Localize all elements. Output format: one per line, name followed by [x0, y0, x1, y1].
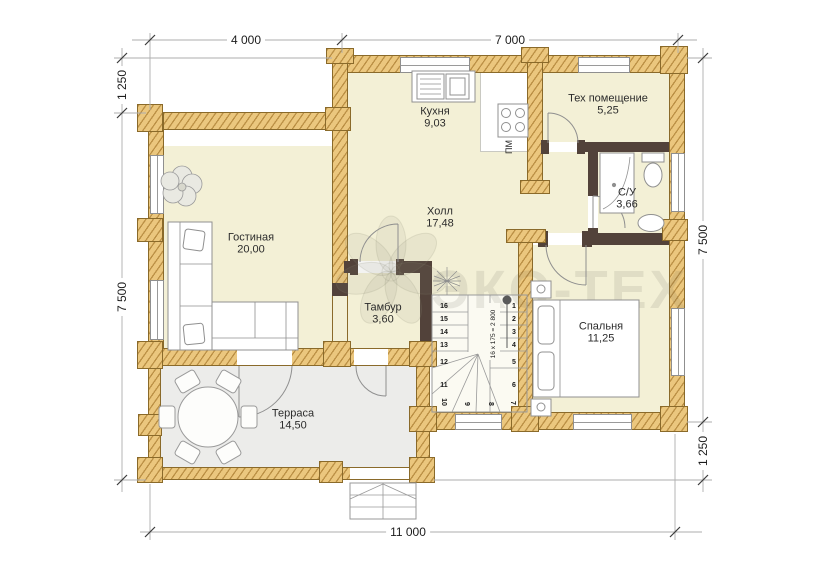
log-crossing	[326, 48, 354, 64]
wall-stairs-bedroom	[518, 233, 533, 412]
room-area: 17,48	[426, 218, 454, 230]
room-label-tech: Тех помещение 5,25	[568, 93, 648, 118]
wall-kitchen-tech-divider	[527, 55, 543, 188]
floor-hall-lower	[432, 261, 518, 295]
room-area: 9,03	[420, 118, 449, 130]
opening-living-terrace	[237, 349, 292, 365]
room-label-kitchen: Кухня 9,03	[420, 106, 449, 131]
room-area: 14,50	[272, 420, 314, 432]
dim-left-upper: 1 250	[115, 66, 129, 104]
log-crossing	[137, 218, 163, 242]
jamb-bedroom-right	[582, 231, 592, 247]
log-crossing	[319, 461, 343, 483]
room-area: 3,66	[616, 199, 637, 211]
log-crossing	[325, 107, 351, 131]
log-crossing	[511, 406, 539, 432]
log-crossing	[137, 104, 163, 132]
dim-right-upper: 7 500	[696, 221, 710, 259]
dim-top-left: 4 000	[227, 33, 265, 47]
opening-bath-door	[588, 196, 598, 228]
log-crossing	[409, 341, 437, 367]
room-name: Тех помещение	[568, 93, 648, 105]
room-area: 3,60	[364, 314, 401, 326]
room-name: С/У	[616, 187, 637, 199]
opening-tambour-hall	[358, 261, 396, 273]
window-living-1	[150, 155, 164, 214]
floor-corridor-lower	[518, 188, 588, 233]
window-living-2	[150, 280, 164, 340]
log-crossing	[138, 414, 162, 436]
dim-bottom: 11 000	[386, 525, 430, 539]
wall-top	[332, 55, 685, 73]
log-crossing	[137, 457, 163, 483]
room-label-tambour: Тамбур 3,60	[364, 302, 401, 327]
partition-tambour-right	[420, 261, 432, 352]
room-label-terrace: Терраса 14,50	[272, 408, 314, 433]
floor-stairwell	[432, 295, 527, 412]
jamb-tambour-right	[396, 259, 404, 275]
room-name: Гостиная	[228, 232, 274, 244]
log-crossing	[660, 406, 688, 432]
partition-bedroom-top	[588, 233, 669, 245]
dim-right-lower: 1 250	[696, 432, 710, 470]
log-crossing	[506, 229, 546, 243]
window-tech	[578, 57, 630, 73]
dishwasher-label: ПМ	[504, 140, 514, 154]
room-name: Спальня	[579, 321, 623, 333]
log-crossing	[323, 341, 351, 367]
window-kitchen	[400, 57, 470, 73]
wall-living-top	[148, 112, 348, 130]
room-area: 20,00	[228, 244, 274, 256]
room-label-bedroom: Спальня 11,25	[579, 321, 623, 346]
dim-left-lower: 7 500	[115, 278, 129, 316]
dim-top-right: 7 000	[491, 33, 529, 47]
porch-steps	[350, 483, 416, 519]
log-crossing	[137, 341, 163, 369]
window-bedroom-east	[671, 308, 685, 376]
jamb-tech-right	[577, 140, 585, 154]
opening-front-door	[354, 349, 388, 365]
window-bedroom-south	[573, 414, 632, 430]
room-area: 5,25	[568, 105, 648, 117]
room-name: Кухня	[420, 106, 449, 118]
log-crossing	[409, 457, 435, 483]
jamb-tambour-left	[350, 259, 358, 275]
log-crossing	[660, 46, 688, 74]
room-name: Терраса	[272, 408, 314, 420]
jamb-tech-left	[541, 140, 549, 154]
room-name: Холл	[426, 206, 454, 218]
log-crossing	[521, 47, 549, 63]
room-name: Тамбур	[364, 302, 401, 314]
room-label-bath: С/У 3,66	[616, 187, 637, 212]
opening-terrace-steps	[350, 468, 416, 479]
log-crossing	[409, 406, 437, 432]
opening-tech-door	[549, 142, 577, 152]
floor-plan: ЭКО-ТЕХ	[0, 0, 820, 567]
log-crossing	[662, 219, 688, 241]
jamb-living-opening	[332, 283, 348, 296]
log-crossing	[520, 180, 550, 194]
room-area: 11,25	[579, 333, 623, 345]
room-label-living: Гостиная 20,00	[228, 232, 274, 257]
window-bath	[671, 153, 685, 212]
room-label-hall: Холл 17,48	[426, 206, 454, 231]
window-stairwell	[455, 414, 502, 430]
